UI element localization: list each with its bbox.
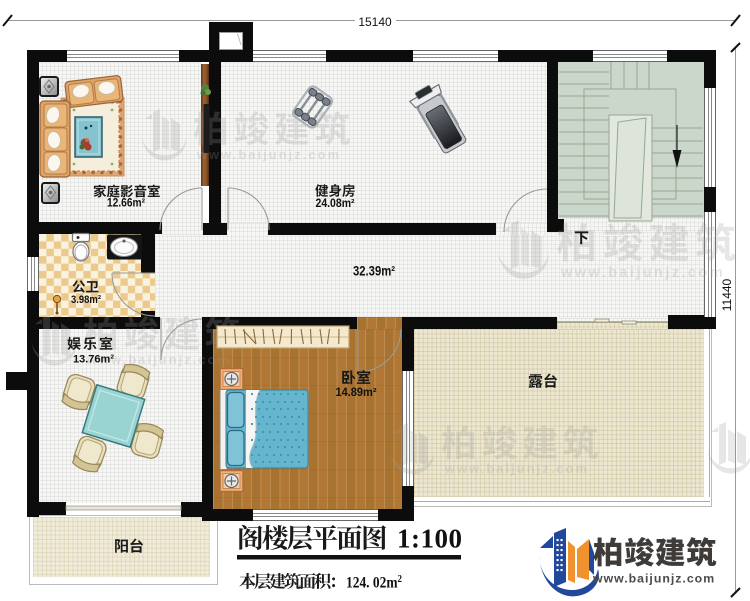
svg-text:1:100: 1:100 xyxy=(397,524,462,554)
svg-text:15140: 15140 xyxy=(358,15,392,29)
svg-text:32.39m²: 32.39m² xyxy=(353,264,395,279)
svg-text:124. 02m2: 124. 02m2 xyxy=(346,574,402,592)
svg-text:13.76m²: 13.76m² xyxy=(73,354,114,366)
svg-text:12.66m²: 12.66m² xyxy=(107,198,145,210)
svg-text:3.98m²: 3.98m² xyxy=(71,294,101,306)
svg-text:24.08m²: 24.08m² xyxy=(316,198,355,210)
svg-text:11440: 11440 xyxy=(720,278,734,311)
svg-text:14.89m²: 14.89m² xyxy=(336,387,377,399)
svg-text:www.baijunjz.com: www.baijunjz.com xyxy=(592,572,715,586)
